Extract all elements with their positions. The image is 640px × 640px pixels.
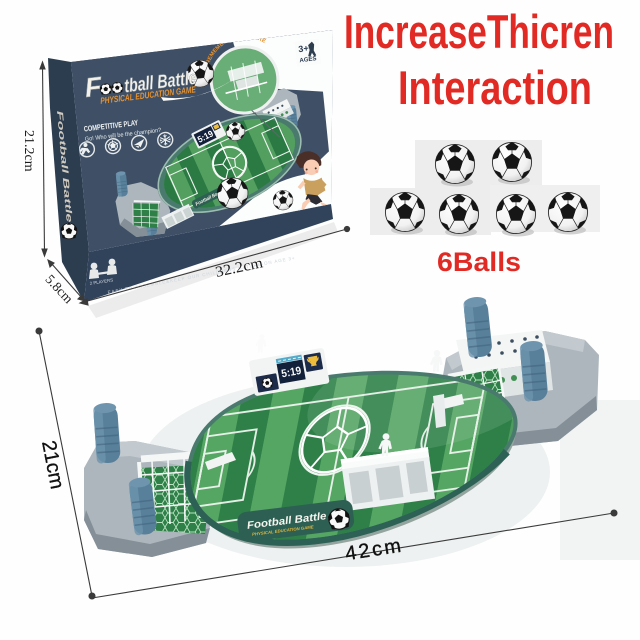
svg-text:Interaction: Interaction (398, 61, 592, 114)
svg-text:21.2cm: 21.2cm (21, 130, 36, 172)
svg-text:3+: 3+ (298, 43, 309, 54)
svg-text:IncreaseThicren: IncreaseThicren (344, 5, 614, 58)
svg-text:6Balls: 6Balls (437, 247, 521, 277)
